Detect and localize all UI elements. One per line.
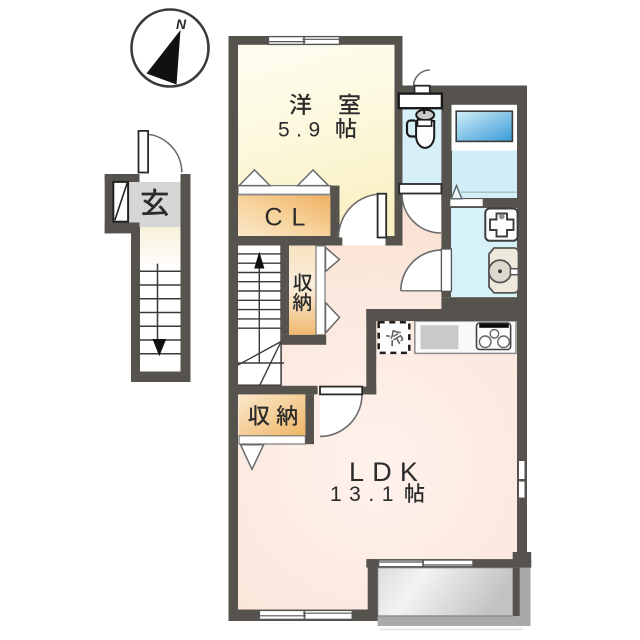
svg-text:N: N bbox=[176, 16, 187, 32]
svg-text:13.1: 13.1 bbox=[330, 483, 401, 506]
svg-text:CL: CL bbox=[265, 204, 315, 232]
svg-text:5.9: 5.9 bbox=[278, 119, 327, 142]
